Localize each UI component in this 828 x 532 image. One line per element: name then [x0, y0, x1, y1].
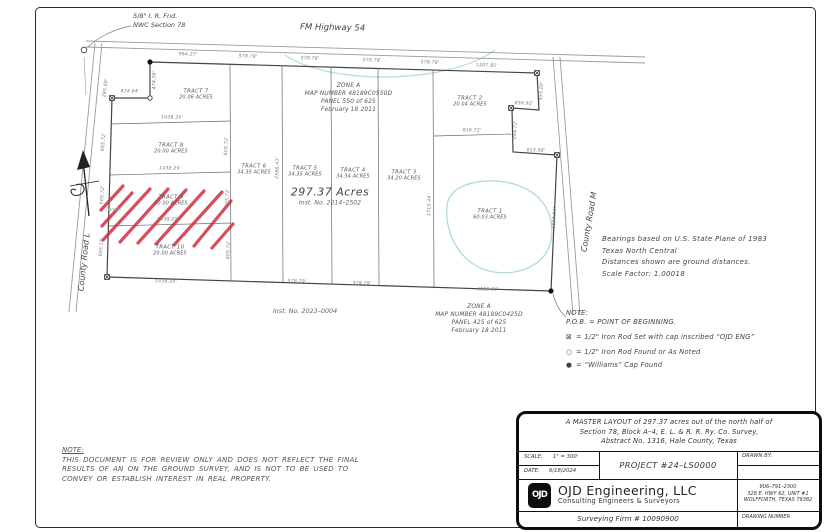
company-address-line2: WOLFFORTH, TEXAS 79382 — [737, 497, 819, 504]
title-block: A MASTER LAYOUT of 297.37 acres out of t… — [516, 411, 822, 530]
iron-rod-set-symbol — [535, 71, 540, 76]
iron-rod-set-symbol — [509, 106, 514, 111]
pob-leader — [553, 294, 566, 317]
dimension-label: 815.98' — [527, 148, 546, 154]
williams-cap-icon: ● — [566, 361, 576, 369]
instrument-number-bottom: Inst. No. 2023–0004 — [273, 307, 337, 315]
dimension-label: 605.72' — [226, 241, 232, 260]
project-number: PROJECT #24–LS0000 — [599, 451, 737, 479]
iron-rod-found-icon: ○ — [566, 348, 576, 356]
total-acreage-label: 297.37 Acres Inst. No. 2014–2502 — [291, 186, 370, 207]
leader-lines — [88, 26, 566, 317]
williams-cap-symbol — [147, 59, 152, 64]
drawing-number-label: DRAWING NUMBER — [742, 514, 790, 520]
instrument-number: Inst. No. 2014–2502 — [291, 200, 370, 207]
dimension-label: 578.78' — [363, 58, 382, 63]
well-label: (well) — [106, 207, 121, 213]
iron-rod-set-symbol — [110, 96, 115, 101]
scale-value: 1" = 300' — [553, 454, 578, 460]
dimension-label: 578.78' — [239, 54, 258, 59]
flood-zone-note-top: ZONE A MAP NUMBER 48189C0550D PANEL 550 … — [286, 82, 411, 114]
tract-10-label: TRACT 1020.00 ACRES — [153, 245, 187, 258]
legend-item: ○= 1/2" Iron Rod Found or As Noted — [566, 348, 701, 356]
wetland-outline — [447, 181, 552, 273]
dimension-label: 856.92' — [515, 101, 534, 107]
flood-zone-note-bottom: ZONE A MAP NUMBER 48189C0425D PANEL 425 … — [424, 303, 534, 335]
tract-3-label: TRACT 334.20 ACRES — [387, 170, 421, 183]
surveying-firm-number: Surveying Firm # 10090900 — [519, 511, 737, 527]
dimension-label: 474.84' — [121, 90, 140, 95]
dimension-label: 1438.29' — [157, 217, 179, 223]
review-disclaimer-note: NOTE: THIS DOCUMENT IS FOR REVIEW ONLY A… — [62, 446, 407, 483]
dimension-label: 1438.29' — [159, 166, 181, 172]
dimension-label: 964.27' — [179, 52, 198, 57]
review-note-title: NOTE: — [62, 446, 407, 454]
divider — [519, 465, 599, 466]
dimension-label: 816.72' — [463, 128, 482, 133]
corner-note-line: 5/8" I. R. Fnd. — [133, 12, 185, 21]
divider — [737, 465, 819, 466]
iron-rod-set-symbol — [555, 153, 560, 158]
legend-title: NOTE: — [566, 309, 588, 317]
company-name: OJD Engineering, LLC — [558, 485, 697, 497]
williams-cap-symbol — [548, 288, 553, 293]
drawn-by-label: DRAWN BY: — [742, 453, 772, 459]
tract-1-label: TRACT 160.03 ACRES — [473, 209, 507, 222]
dimension-label: 578.79' — [288, 279, 307, 284]
dimension-label: 474.56' — [153, 71, 158, 90]
master-layout-description: A MASTER LAYOUT of 297.37 acres out of t… — [519, 418, 819, 447]
fm-highway-54-label: FM Highway 54 — [300, 22, 365, 33]
iron-rod-found-symbol — [148, 96, 152, 100]
legend-item: ⊠= 1/2" Iron Rod Set with cap inscribed … — [566, 333, 754, 341]
company-address-line1: 328 E. HWY 62, UNIT #1 — [737, 491, 819, 498]
dimension-label: 1438.29' — [155, 279, 177, 285]
dimension-label: 2586.43' — [275, 157, 281, 179]
tract-2-label: TRACT 220.04 ACRES — [453, 96, 487, 109]
dimension-label: 1207.81' — [476, 63, 498, 69]
scale-label: SCALE: — [524, 454, 543, 460]
tract-9-label: TRACT 920.00 ACRES — [154, 195, 188, 208]
tract-7-label: TRACT 720.06 ACRES — [179, 89, 213, 102]
dimension-label: 605.72' — [225, 189, 231, 208]
dimension-label: 1635.00' — [477, 287, 499, 293]
tract-6-label: TRACT 634.35 ACRES — [237, 164, 271, 177]
corner-note-leader — [88, 26, 131, 47]
road-tick — [84, 57, 86, 95]
dimension-label: 578.78' — [301, 56, 320, 61]
iron-rod-set-symbol — [105, 275, 110, 280]
survey-plat-sheet: FM Highway 54 County Road L County Road … — [0, 0, 828, 532]
dimension-label: 578.78' — [421, 60, 440, 65]
tract-8-label: TRACT 820.00 ACRES — [154, 143, 188, 156]
company-block: OJD OJD Engineering, LLC Consulting Engi… — [519, 479, 737, 511]
tract-4-label: TRACT 434.34 ACRES — [336, 168, 370, 181]
corner-monument-note: 5/8" I. R. Fnd. NWC Section 78 — [133, 12, 185, 29]
date-value: 6/18/2024 — [549, 468, 576, 474]
tract-5-label: TRACT 534.35 ACRES — [288, 166, 322, 179]
company-contact: 806–791–2300 328 E. HWY 62, UNIT #1 WOLF… — [737, 479, 819, 511]
north-arrow-icon — [70, 150, 99, 216]
company-tagline: Consulting Engineers & Surveyors — [558, 497, 697, 505]
iron-rod-found-symbol — [81, 47, 87, 53]
bearings-note: Bearings based on U.S. State Plane of 19… — [602, 234, 767, 280]
corner-note-line: NWC Section 78 — [133, 21, 185, 30]
legend-pob-definition: P.O.B. = POINT OF BEGINNING. — [566, 318, 676, 326]
dimension-label: 1438.29' — [161, 115, 183, 121]
dimension-label: 578.78' — [353, 281, 372, 286]
dimension-label: 1715.44' — [427, 194, 433, 216]
county-road-m-lines — [553, 57, 580, 315]
date-label: DATE: — [524, 468, 540, 474]
dimension-label: 605.72' — [224, 137, 230, 156]
legend-item: ●= “Williams” Cap Found — [566, 361, 662, 369]
company-phone: 806–791–2300 — [737, 484, 819, 491]
ojd-logo: OJD — [528, 483, 551, 508]
iron-rod-set-icon: ⊠ — [566, 333, 576, 341]
dimension-label: 244.72' — [513, 121, 519, 140]
